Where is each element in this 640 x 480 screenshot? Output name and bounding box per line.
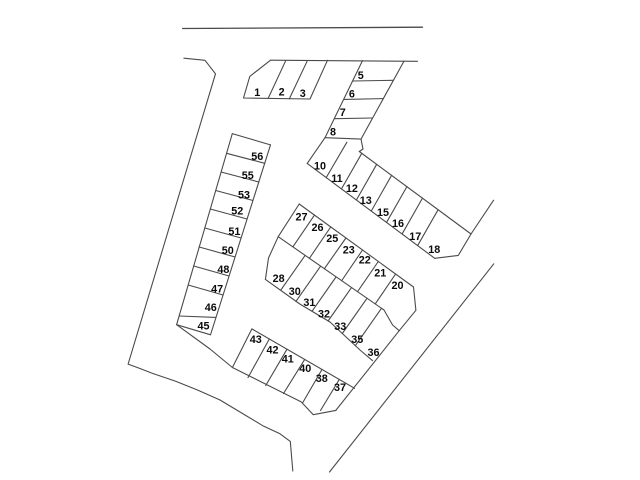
svg-text:3: 3 [300,88,306,100]
svg-text:53: 53 [238,189,250,201]
svg-text:52: 52 [231,206,243,218]
svg-text:20: 20 [391,280,403,292]
svg-text:2: 2 [279,87,285,99]
svg-text:15: 15 [377,207,389,219]
svg-text:10: 10 [314,161,326,173]
svg-text:6: 6 [349,88,355,100]
svg-text:31: 31 [303,297,315,309]
svg-text:38: 38 [316,373,328,385]
svg-text:47: 47 [211,283,223,295]
svg-text:18: 18 [428,244,440,256]
svg-text:12: 12 [346,183,358,195]
svg-text:27: 27 [295,211,307,223]
svg-text:30: 30 [289,286,301,298]
svg-text:25: 25 [326,233,338,245]
svg-text:36: 36 [367,347,379,359]
svg-text:28: 28 [273,273,285,285]
svg-text:40: 40 [299,363,311,375]
svg-text:55: 55 [242,170,254,182]
svg-text:45: 45 [197,321,209,333]
svg-text:1: 1 [254,87,260,99]
svg-text:13: 13 [360,195,372,207]
svg-text:26: 26 [311,222,323,234]
svg-text:17: 17 [409,231,421,243]
svg-text:46: 46 [205,302,217,314]
svg-text:32: 32 [318,309,330,321]
svg-text:21: 21 [374,267,386,279]
svg-text:33: 33 [334,321,346,333]
svg-text:41: 41 [282,354,294,366]
svg-text:43: 43 [250,334,262,346]
svg-text:42: 42 [266,345,278,357]
svg-text:7: 7 [340,107,346,119]
svg-text:35: 35 [351,334,363,346]
svg-text:23: 23 [343,244,355,256]
svg-text:56: 56 [251,151,263,163]
svg-text:8: 8 [330,127,336,139]
svg-text:48: 48 [217,264,229,276]
svg-text:11: 11 [331,173,342,185]
svg-text:37: 37 [334,382,346,394]
svg-text:50: 50 [222,245,234,257]
svg-text:16: 16 [392,218,404,230]
svg-text:51: 51 [228,226,240,238]
svg-text:5: 5 [358,70,364,82]
svg-text:22: 22 [359,255,371,267]
